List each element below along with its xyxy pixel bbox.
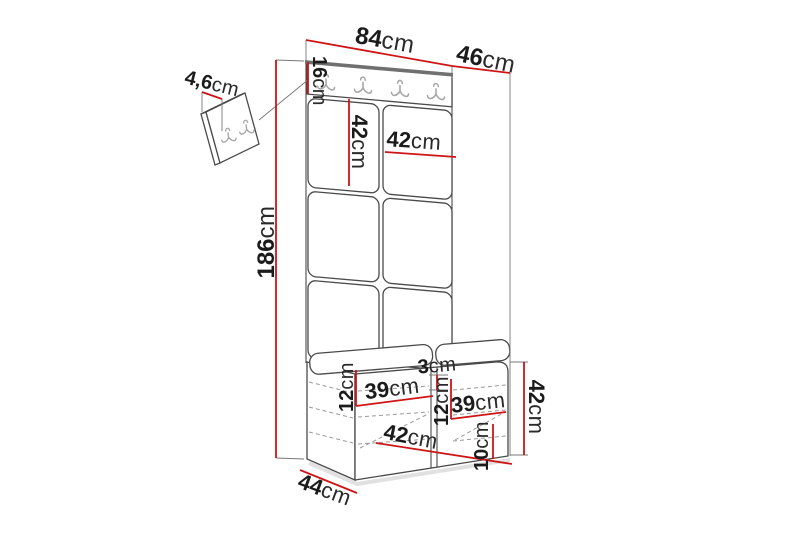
dim-label-bottom-10: 10cm [471, 421, 493, 471]
dim-label-bench-height-42: 42cm [525, 380, 550, 435]
diagram-canvas: 84cm 46cm 16cm 42cm 42cm 186cm 4,6cm 3cm… [0, 0, 800, 533]
dim-label-depth-46: 46cm [454, 40, 518, 79]
dim-label-rail-16: 16cm [308, 56, 330, 106]
dim-label-panel-width-42: 42cm [386, 126, 442, 155]
upholstered-panel [383, 198, 452, 289]
dim-label-total-height-186: 186cm [253, 205, 280, 278]
furniture-dimension-diagram: 84cm 46cm 16cm 42cm 42cm 186cm 4,6cm 3cm… [0, 0, 800, 533]
upholstered-panel [308, 191, 379, 282]
main-unit [305, 60, 453, 376]
dim-label-seat-3: 3cm [417, 353, 458, 378]
dim-label-width-84: 84cm [353, 22, 416, 59]
dim-label-gap-left-12: 12cm [336, 362, 358, 412]
detail-leader-line [259, 79, 309, 120]
dim-label-panel-height-42: 42cm [348, 115, 373, 170]
